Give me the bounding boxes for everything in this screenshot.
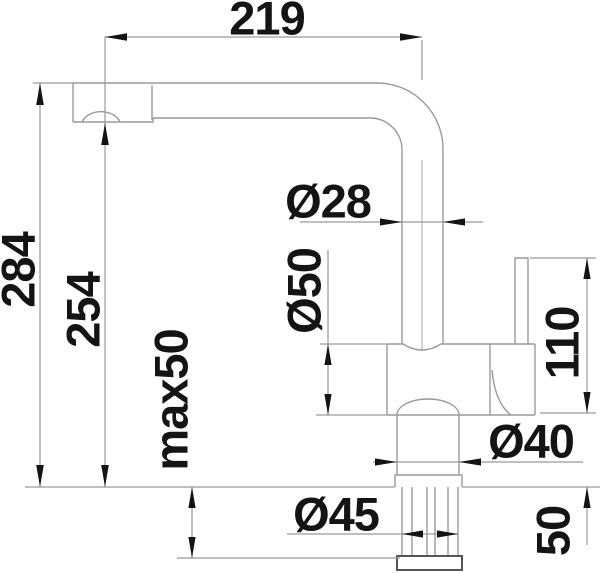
lever-handle [515, 258, 528, 344]
body-top-edge [387, 344, 535, 350]
arrow-outlet-height-bottom [101, 465, 109, 487]
arrow-body-diameter-top [324, 344, 331, 365]
dim-label-spout-reach: 219 [229, 0, 304, 42]
arrow-overall-height-top [36, 83, 44, 105]
dim-label-pipe-diameter: Ø28 [285, 178, 371, 225]
arrow-max-thickness-bottom [188, 537, 195, 558]
arrow-below-counter-top [583, 487, 590, 508]
dim-label-body-diameter: Ø50 [281, 248, 328, 334]
arrow-lever-height-bottom [583, 392, 590, 413]
arrow-pipe-diameter-left [380, 218, 402, 225]
lever-joint-curve [492, 370, 511, 415]
base-cylinder-sides [397, 415, 459, 475]
arrow-pipe-diameter-right [443, 218, 465, 225]
arrow-spout-reach-left [105, 33, 127, 41]
arrow-max-thickness-top [188, 487, 195, 508]
dim-label-lever-height: 110 [539, 307, 586, 380]
arrow-overall-height-bottom [36, 465, 44, 487]
dim-label-max-mounting-thickness: max50 [148, 329, 195, 470]
arrow-base-diameter-right [459, 458, 481, 465]
mounting-nut [397, 556, 462, 570]
dim-label-overall-height: 284 [0, 232, 42, 307]
dim-label-outlet-height: 254 [60, 272, 107, 347]
dim-label-base-diameter: Ø40 [488, 418, 574, 465]
mounting-flange [395, 475, 462, 487]
dim-label-below-counter-clearance: 50 [530, 506, 577, 556]
arrow-body-diameter-bottom [324, 394, 331, 415]
arrow-outlet-height-top [101, 123, 109, 145]
dim-label-mounting-hole-diameter: Ø45 [293, 491, 379, 538]
base-dome-arc [397, 399, 459, 415]
arrow-spout-reach-right [400, 33, 422, 41]
arrow-base-diameter-left [375, 458, 397, 465]
arrow-lever-height-top [583, 258, 590, 279]
threaded-shank-lines [402, 487, 458, 556]
technical-drawing: 219 284 254 max50 Ø28 Ø50 110 Ø40 Ø45 50 [0, 0, 600, 573]
aerator-dome [82, 112, 120, 122]
